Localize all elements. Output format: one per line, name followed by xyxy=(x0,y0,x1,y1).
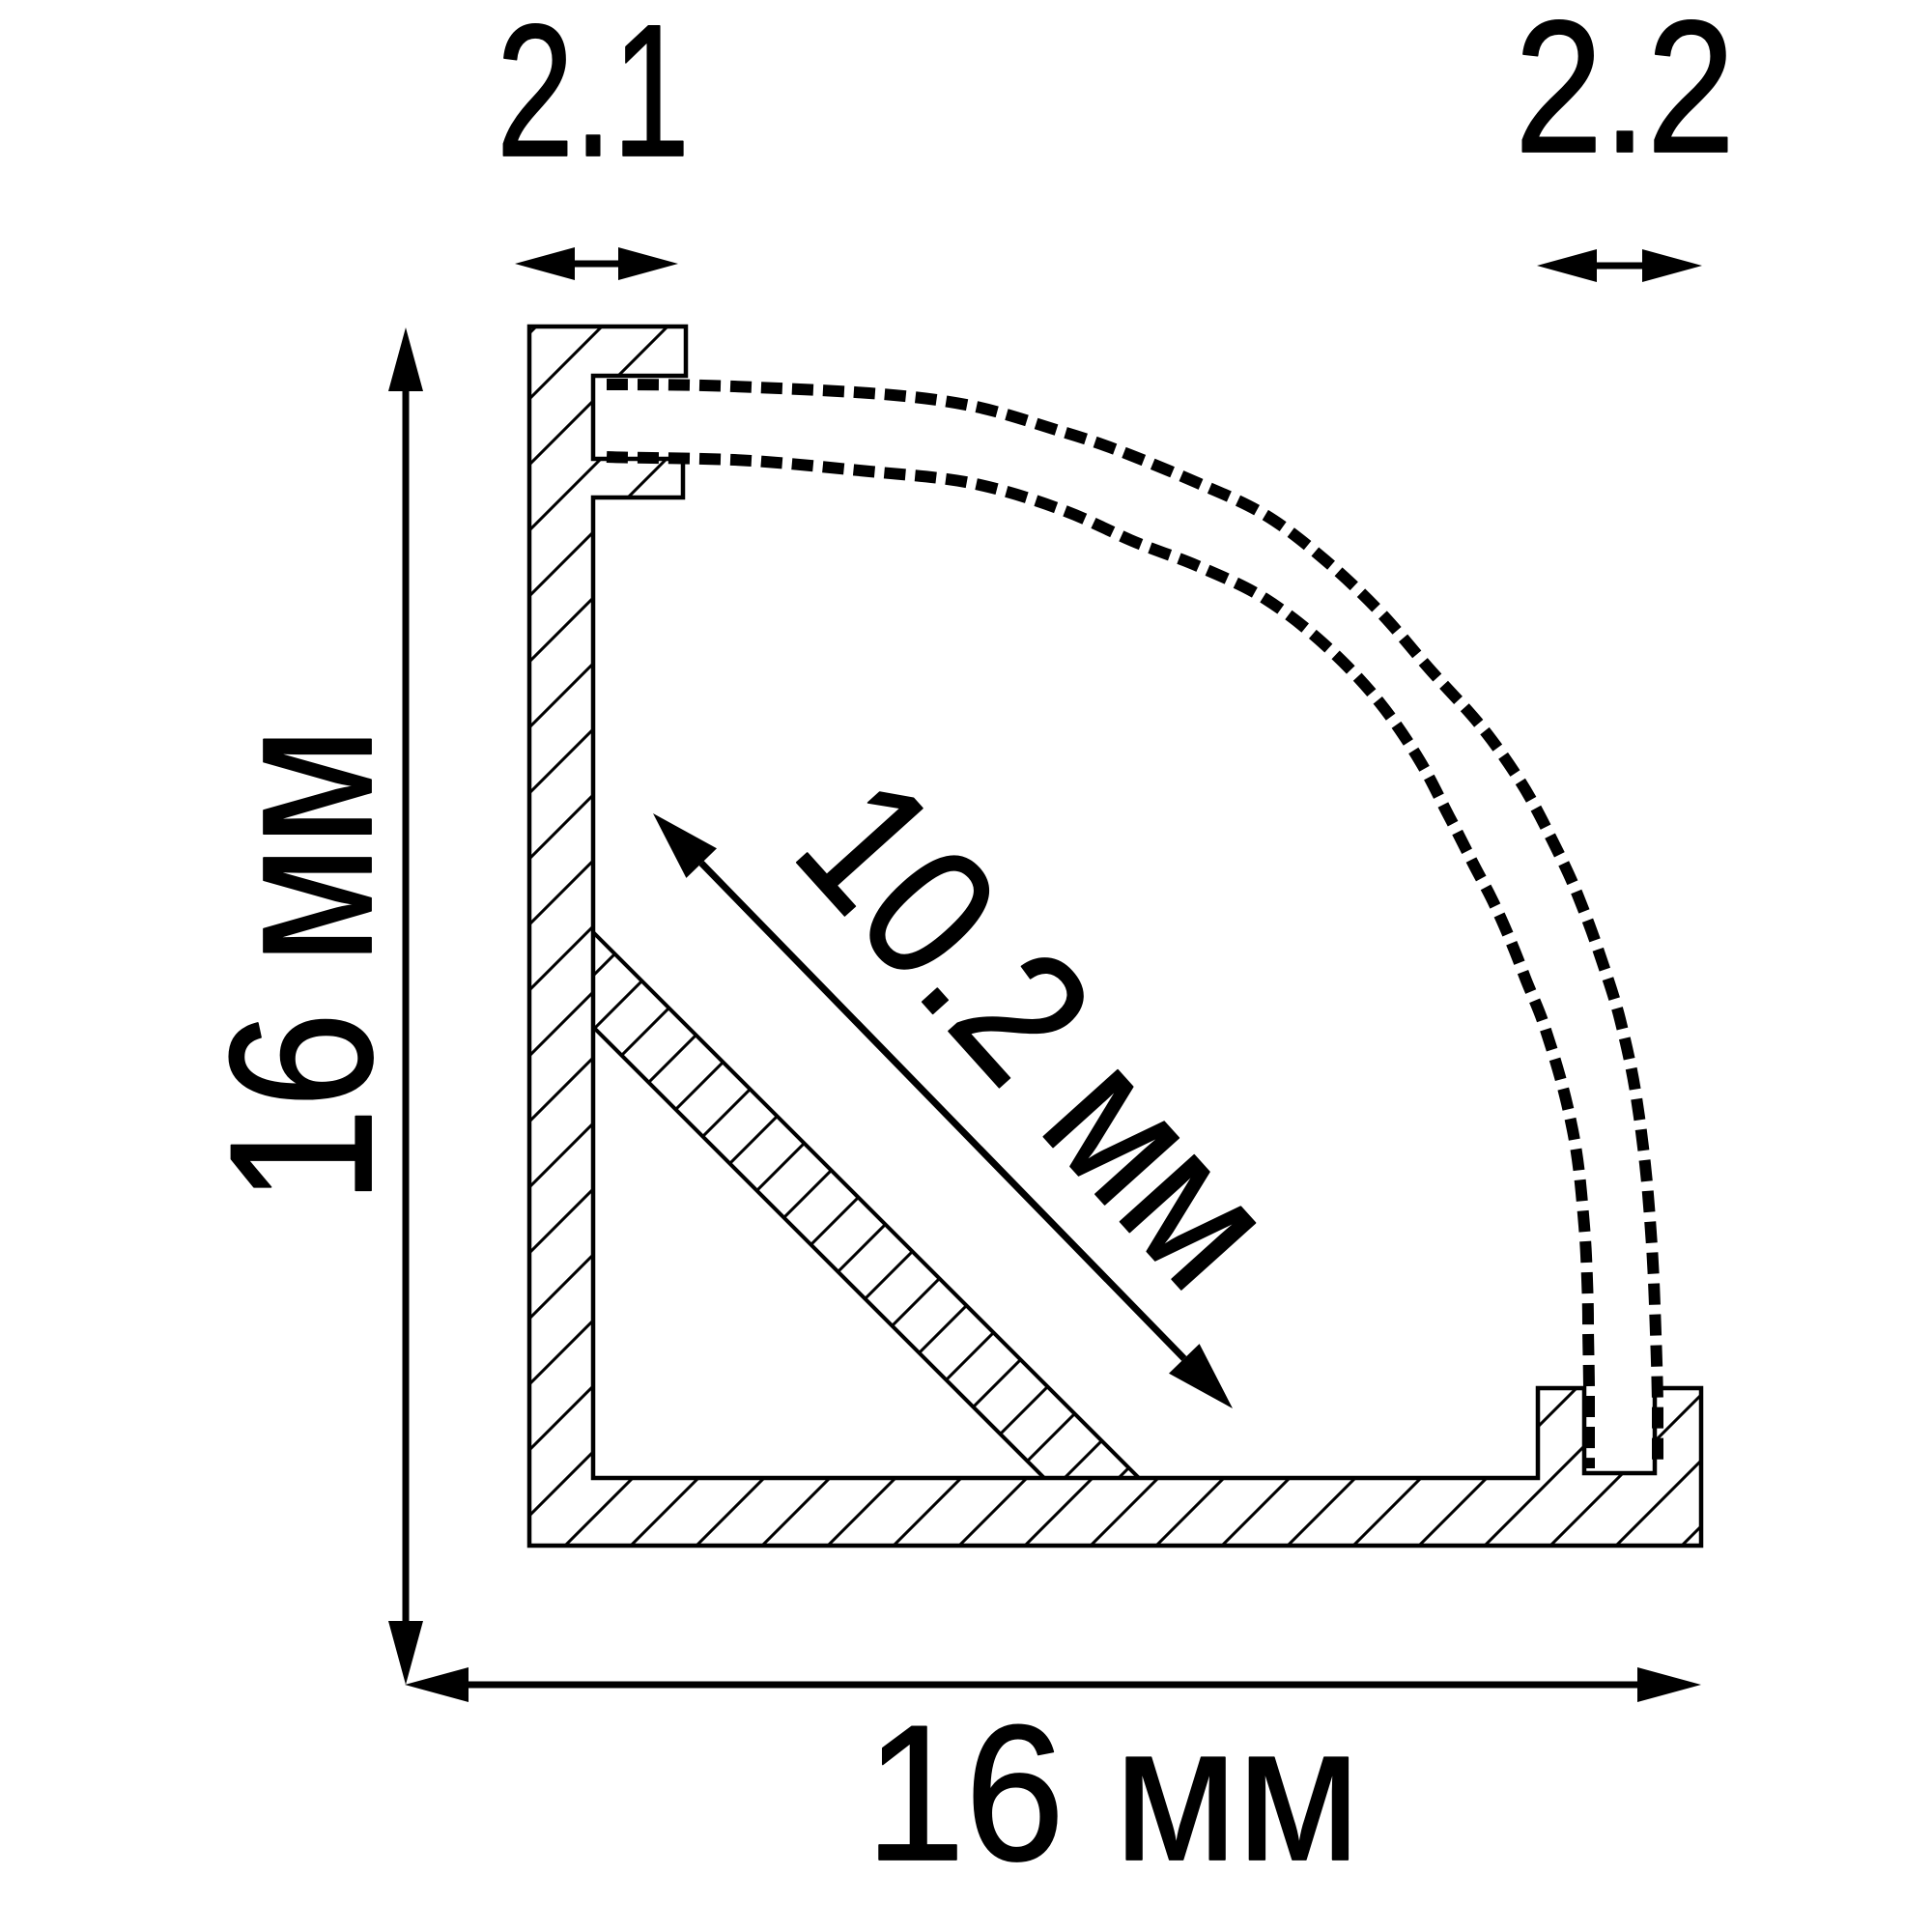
svg-text:16 мм: 16 мм xyxy=(866,1686,1360,1901)
svg-text:2.2: 2.2 xyxy=(1515,0,1735,192)
svg-text:2.1: 2.1 xyxy=(497,0,690,196)
svg-text:16 мм: 16 мм xyxy=(187,727,414,1204)
